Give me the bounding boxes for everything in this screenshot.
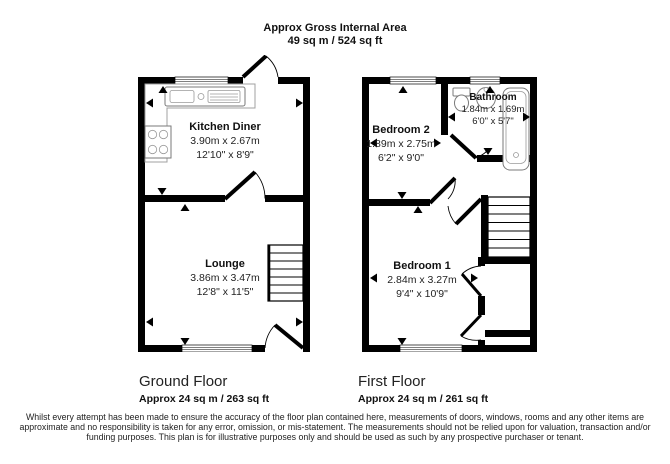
header-title: Approx Gross Internal Area: [0, 22, 670, 35]
arrow-right-icon: [296, 318, 303, 327]
arrow-down-icon: [158, 188, 167, 195]
first-floor-caption: First Floor Approx 24 sq m / 261 sq ft: [358, 373, 488, 406]
floorplan-page: Approx Gross Internal Area 49 sq m / 524…: [0, 0, 670, 464]
kitchen-back-door: [243, 56, 278, 77]
arrow-down-icon: [484, 148, 493, 155]
lounge-window: [182, 345, 252, 352]
header-value: 49 sq m / 524 sq ft: [0, 35, 670, 48]
room-imperial: 6'2" x 9'0": [340, 151, 462, 165]
gross-internal-area-header: Approx Gross Internal Area 49 sq m / 524…: [0, 22, 670, 48]
room-imperial: 12'10" x 8'9": [160, 148, 290, 162]
arrow-down-icon: [181, 338, 190, 345]
disclaimer-text: Whilst every attempt has been made to en…: [14, 412, 656, 442]
room-label-kitchen-diner: Kitchen Diner 3.90m x 2.67m 12'10" x 8'9…: [160, 120, 290, 162]
room-label-lounge: Lounge 3.86m x 3.47m 12'8" x 11'5": [160, 257, 290, 299]
ground-floor-title: Ground Floor: [139, 373, 269, 390]
bathroom-window: [470, 77, 500, 84]
room-metric: 2.84m x 3.27m: [361, 273, 483, 287]
room-label-bathroom: Bathroom 1.84m x 1.69m 6'0" x 5'7": [447, 92, 539, 128]
bedroom2-door: [430, 178, 455, 203]
arrow-up-icon: [414, 206, 423, 213]
kitchen-sink: [165, 87, 245, 106]
arrow-right-icon: [296, 99, 303, 108]
bedroom1-door: [448, 199, 481, 224]
arrow-left-icon: [146, 318, 153, 327]
first-floor-title: First Floor: [358, 373, 488, 390]
kitchen-window: [175, 77, 228, 84]
room-imperial: 9'4" x 10'9": [361, 287, 483, 301]
kitchen-lounge-door: [225, 172, 265, 199]
room-metric: 1.89m x 2.75m: [340, 137, 462, 151]
arrow-up-icon: [399, 86, 408, 93]
room-name: Bedroom 1: [361, 259, 483, 273]
room-name: Bedroom 2: [340, 123, 462, 137]
cupboard-door-lower: [461, 315, 481, 340]
kitchen-back-door-gap: [243, 77, 278, 85]
gf-internal-wall: [138, 195, 310, 202]
ground-floor-area: Approx 24 sq m / 263 sq ft: [139, 393, 269, 406]
room-metric: 3.86m x 3.47m: [160, 271, 290, 285]
ff-stairs: [488, 197, 530, 257]
ground-floor-drawing: [138, 55, 310, 352]
room-label-bedroom-1: Bedroom 1 2.84m x 3.27m 9'4" x 10'9": [361, 259, 483, 301]
arrow-down-icon: [398, 192, 407, 199]
arrow-up-icon: [181, 204, 190, 211]
room-imperial: 12'8" x 11'5": [160, 285, 290, 299]
room-name: Kitchen Diner: [160, 120, 290, 134]
first-floor-area: Approx 24 sq m / 261 sq ft: [358, 393, 488, 406]
room-label-bedroom-2: Bedroom 2 1.89m x 2.75m 6'2" x 9'0": [340, 123, 462, 165]
room-metric: 3.90m x 2.67m: [160, 134, 290, 148]
room-metric: 1.84m x 1.69m: [447, 104, 539, 116]
room-name: Lounge: [160, 257, 290, 271]
room-imperial: 6'0" x 5'7": [447, 116, 539, 128]
bedroom2-window: [390, 77, 436, 84]
ground-floor-caption: Ground Floor Approx 24 sq m / 263 sq ft: [139, 373, 269, 406]
room-name: Bathroom: [447, 92, 539, 104]
bedroom1-window: [400, 345, 462, 352]
arrow-down-icon: [398, 338, 407, 345]
